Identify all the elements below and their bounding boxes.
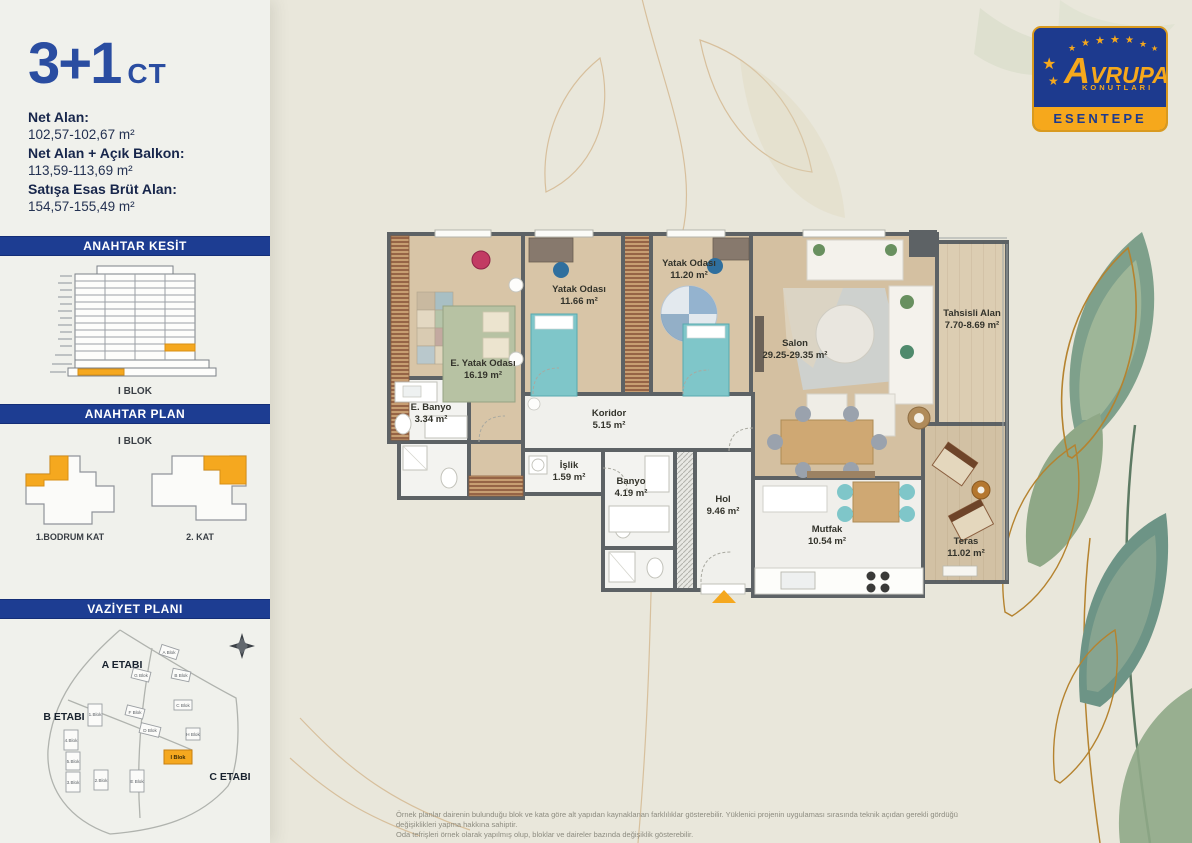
svg-text:11.02 m²: 11.02 m² bbox=[947, 548, 985, 559]
window bbox=[667, 230, 725, 237]
keyplan-right-caption: 2. KAT bbox=[186, 532, 214, 542]
room-label-banyo: Banyo 4.19 m² bbox=[615, 476, 648, 499]
svg-text:Yatak Odası: Yatak Odası bbox=[552, 284, 606, 295]
unit-variant-label: CT bbox=[127, 58, 166, 90]
svg-text:Tahsisli Alan: Tahsisli Alan bbox=[943, 308, 1001, 319]
svg-text:4.19 m²: 4.19 m² bbox=[615, 488, 648, 499]
key-plan-diagram: I BLOK 1.BODRUM KAT 2. KAT bbox=[0, 426, 270, 556]
block-label: D Blok bbox=[143, 728, 157, 733]
star-icon: ★ bbox=[1081, 38, 1090, 49]
room-label-e-banyo: E. Banyo 3.34 m² bbox=[411, 402, 452, 425]
svg-text:11.66 m²: 11.66 m² bbox=[560, 296, 598, 307]
brand-project-label: ESENTEPE bbox=[1034, 107, 1166, 130]
disclaimer: Örnek planlar dairenin bulunduğu blok ve… bbox=[396, 810, 996, 840]
svg-text:1.59 m²: 1.59 m² bbox=[553, 472, 586, 483]
wardrobe-strip bbox=[469, 476, 523, 496]
block-label: E Blok bbox=[130, 779, 144, 784]
block-label: 1.Blok bbox=[89, 712, 102, 717]
building-cross-section-diagram: I BLOK bbox=[0, 258, 270, 404]
highlight-bodrum-unit bbox=[78, 369, 124, 375]
phase-label-c: C ETABI bbox=[209, 771, 250, 783]
area-value: 154,57-155,49 m² bbox=[28, 198, 185, 216]
svg-text:Koridor: Koridor bbox=[592, 408, 627, 419]
room-label-mutfak: Mutfak 10.54 m² bbox=[808, 524, 846, 547]
brochure-page: 3+1 CT Net Alan: 102,57-102,67 m² Net Al… bbox=[0, 0, 1192, 843]
svg-text:29.25-29.35 m²: 29.25-29.35 m² bbox=[763, 350, 828, 361]
block-label: 5.Blok bbox=[67, 759, 80, 764]
svg-text:Mutfak: Mutfak bbox=[812, 524, 843, 535]
wardrobe-column bbox=[623, 234, 651, 394]
star-icon: ★ bbox=[1048, 74, 1059, 88]
svg-text:3.34 m²: 3.34 m² bbox=[415, 414, 448, 425]
unit-title: 3+1 CT bbox=[28, 30, 167, 97]
room-label-koridor: Koridor 5.15 m² bbox=[592, 408, 627, 431]
star-icon: ★ bbox=[1095, 34, 1105, 47]
window bbox=[535, 230, 593, 237]
svg-text:E. Yatak Odası: E. Yatak Odası bbox=[450, 358, 515, 369]
structural-column bbox=[909, 230, 937, 257]
phase-label-b: B ETABI bbox=[43, 711, 84, 723]
window bbox=[803, 230, 885, 237]
disclaimer-line1: Örnek planlar dairenin bulunduğu blok ve… bbox=[396, 810, 996, 830]
svg-text:Salon: Salon bbox=[782, 338, 808, 349]
svg-text:Banyo: Banyo bbox=[616, 476, 645, 487]
block-label: G Blok bbox=[134, 673, 148, 678]
svg-text:5.15 m²: 5.15 m² bbox=[593, 420, 626, 431]
brand-subname: KONUTLARI bbox=[1082, 83, 1153, 92]
svg-text:İşlik: İşlik bbox=[560, 460, 579, 471]
block-label: 2.Blok bbox=[95, 778, 108, 783]
highlight-2kat-unit bbox=[165, 344, 195, 351]
window bbox=[435, 230, 491, 237]
sidebar: 3+1 CT Net Alan: 102,57-102,67 m² Net Al… bbox=[0, 0, 270, 843]
svg-text:10.54 m²: 10.54 m² bbox=[808, 536, 846, 547]
svg-text:9.46 m²: 9.46 m² bbox=[707, 506, 740, 517]
svg-text:16.19 m²: 16.19 m² bbox=[464, 370, 502, 381]
block-label: 3.Blok bbox=[67, 780, 80, 785]
section-header-anahtar-kesit: ANAHTAR KESİT bbox=[0, 236, 270, 256]
compass-icon bbox=[229, 633, 255, 659]
area-info: Net Alan: 102,57-102,67 m² Net Alan + Aç… bbox=[28, 108, 185, 216]
section-header-anahtar-plan: ANAHTAR PLAN bbox=[0, 404, 270, 424]
svg-text:11.20 m²: 11.20 m² bbox=[670, 270, 708, 281]
room-koridor bbox=[523, 394, 753, 450]
star-icon: ★ bbox=[1042, 54, 1056, 74]
svg-text:Teras: Teras bbox=[954, 536, 979, 547]
svg-text:7.70-8.69 m²: 7.70-8.69 m² bbox=[945, 320, 999, 331]
floorplan: E. Yatak Odası 16.19 m² Yatak Odası 11.6… bbox=[383, 228, 1015, 608]
svg-text:E. Banyo: E. Banyo bbox=[411, 402, 452, 413]
section-header-vaziyet-plani: VAZİYET PLANI bbox=[0, 599, 270, 619]
site-highlight-label: I Blok bbox=[171, 755, 187, 761]
area-value: 113,59-113,69 m² bbox=[28, 162, 185, 180]
shaft bbox=[675, 450, 695, 590]
block-label: B Blok bbox=[174, 673, 188, 678]
star-icon: ★ bbox=[1125, 35, 1134, 46]
keyplan-left-caption: 1.BODRUM KAT bbox=[36, 532, 105, 542]
kesit-caption: I BLOK bbox=[118, 386, 153, 397]
star-icon: ★ bbox=[1139, 39, 1147, 50]
block-label: H Blok bbox=[186, 732, 200, 737]
block-label: 4.Blok bbox=[65, 738, 78, 743]
area-label: Satışa Esas Brüt Alan: bbox=[28, 180, 185, 198]
svg-text:Hol: Hol bbox=[715, 494, 730, 505]
brand-logo: ★ ★ ★ ★ ★ ★ ★ ★ ★ AVRUPA KONUTLARI ESENT… bbox=[1032, 26, 1168, 132]
block-label: C Blok bbox=[176, 703, 190, 708]
floor-tick-labels bbox=[50, 276, 72, 372]
block-label: F Blok bbox=[128, 710, 142, 715]
star-icon: ★ bbox=[1110, 33, 1120, 46]
room-label-tahsisli: Tahsisli Alan 7.70-8.69 m² bbox=[943, 308, 1001, 331]
keyplan-caption: I BLOK bbox=[118, 436, 153, 447]
block-label: A Blok bbox=[162, 650, 176, 655]
svg-text:Yatak Odası: Yatak Odası bbox=[662, 258, 716, 269]
brand-logo-top: ★ ★ ★ ★ ★ ★ ★ ★ ★ AVRUPA KONUTLARI bbox=[1034, 28, 1166, 107]
area-label: Net Alan: bbox=[28, 108, 185, 126]
unit-type-label: 3+1 bbox=[28, 30, 120, 97]
site-plan-diagram: A ETABI B ETABI C ETABI A Blok bbox=[0, 620, 270, 842]
area-label: Net Alan + Açık Balkon: bbox=[28, 144, 185, 162]
disclaimer-line2: Oda tefrişleri örnek olarak yapılmış olu… bbox=[396, 830, 996, 840]
room-hol bbox=[695, 450, 753, 590]
area-value: 102,57-102,67 m² bbox=[28, 126, 185, 144]
wardrobe-strip bbox=[391, 236, 409, 440]
